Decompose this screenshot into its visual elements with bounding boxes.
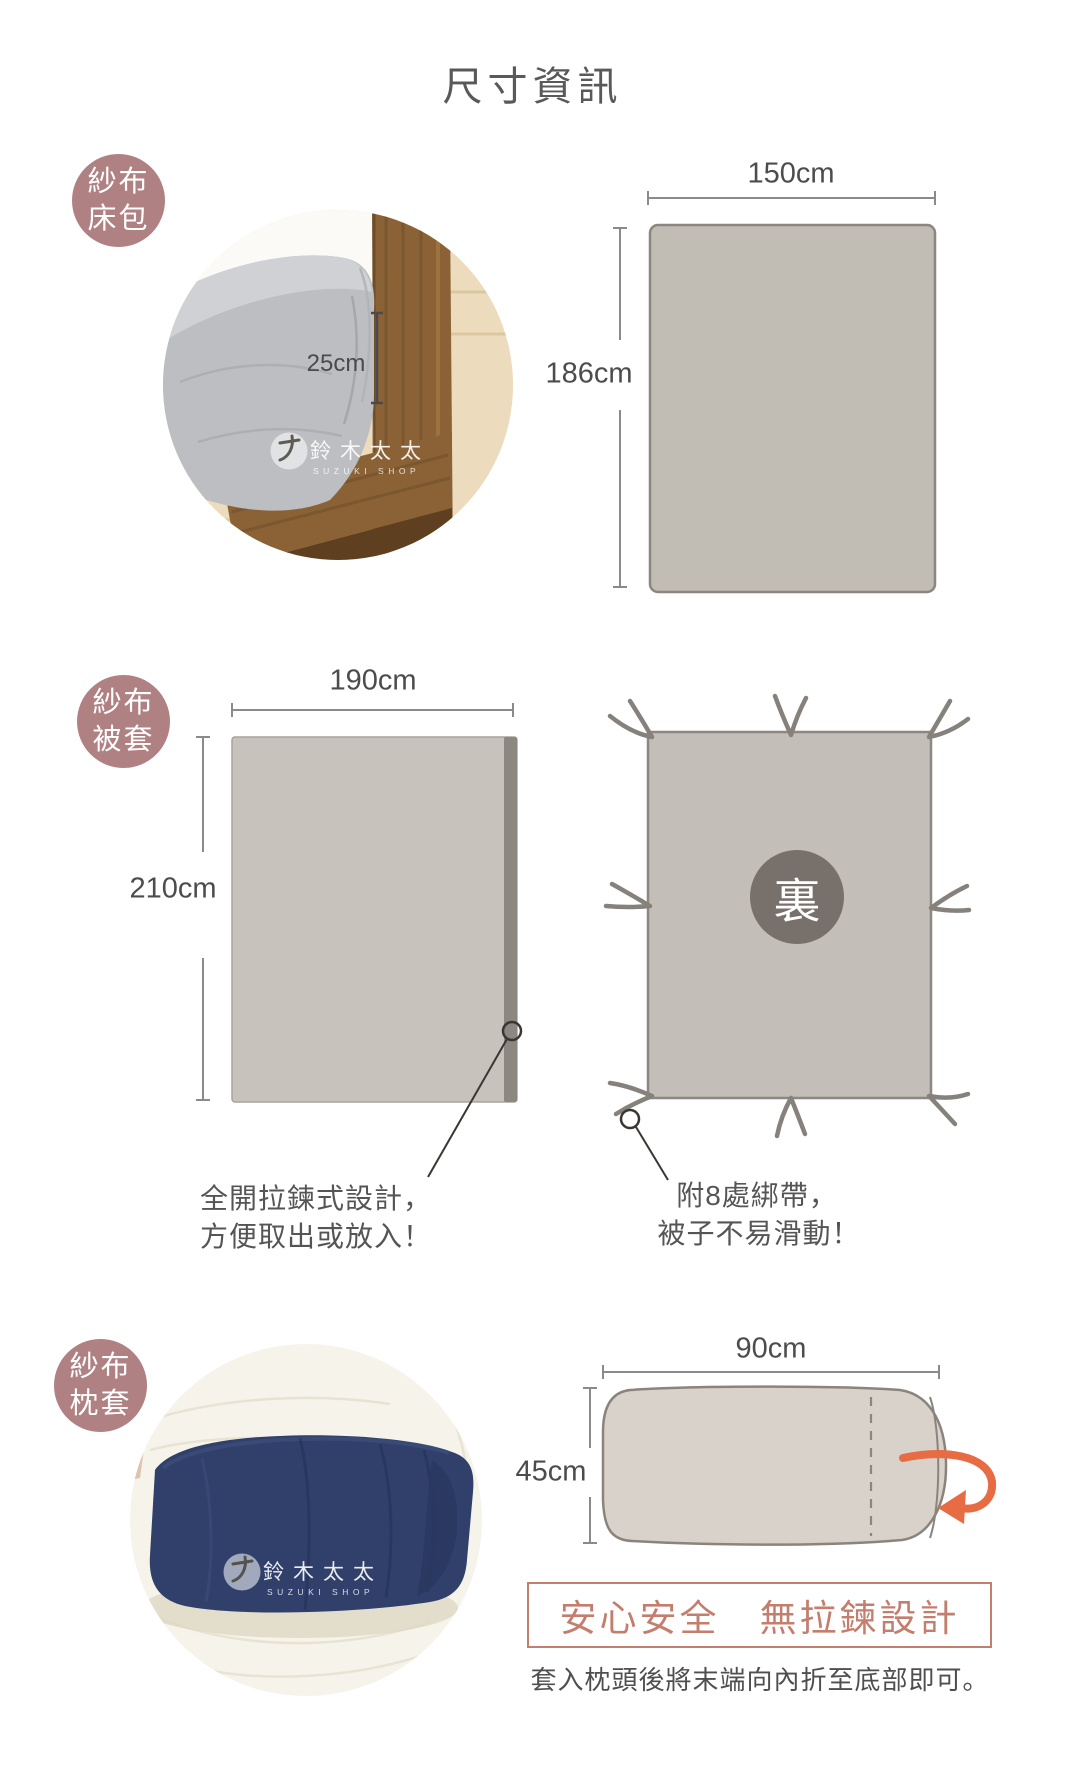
bed-corner-photo: 鈴木太太 SUZUKI SHOP xyxy=(163,210,513,590)
badge-label-line2: 被套 xyxy=(92,722,154,759)
badge-label-line1: 紗布 xyxy=(69,1349,131,1386)
duvet-width-label: 190cm xyxy=(329,665,416,698)
pillow-width-label: 90cm xyxy=(736,1333,807,1366)
duvet-front-diagram xyxy=(196,703,521,1177)
width-dimension-line xyxy=(232,703,513,717)
zipper-note-line2: 方便取出或放入！ xyxy=(200,1218,432,1256)
badge-label-line1: 紗布 xyxy=(87,164,149,201)
pillow-instruction: 套入枕頭後將末端向內折至底部即可。 xyxy=(500,1660,1020,1697)
tie-marker xyxy=(621,1110,639,1128)
watermark-sub: SUZUKI SHOP xyxy=(313,466,420,476)
badge-label-line2: 床包 xyxy=(87,201,149,238)
width-dimension-line xyxy=(603,1365,939,1379)
zipper-note-line1: 全開拉鍊式設計， xyxy=(200,1180,432,1218)
watermark-logo-icon xyxy=(224,1554,261,1591)
zipper-strip xyxy=(504,737,517,1102)
duvet-back-diagram xyxy=(606,696,969,1180)
watermark-brand: 鈴木太太 xyxy=(263,1561,383,1584)
badge-label-line2: 枕套 xyxy=(69,1386,131,1423)
fitted-sheet-diagram xyxy=(613,191,935,592)
back-side-label: 裏 xyxy=(774,863,821,932)
watermark-logo-icon xyxy=(271,433,308,470)
sheet-height-label: 186cm xyxy=(545,358,632,391)
ties-note-line1: 附8處綁帶， xyxy=(676,1177,838,1215)
badge-gauze-fitted-sheet: 紗布 床包 xyxy=(72,154,165,247)
size-info-infographic: 鈴木太太 SUZUKI SHOP xyxy=(0,0,1065,1771)
height-dimension-line xyxy=(196,737,210,1100)
sheet-depth-label: 25cm xyxy=(307,350,366,378)
duvet-height-label: 210cm xyxy=(129,873,216,906)
ties-note-line2: 被子不易滑動！ xyxy=(657,1215,860,1253)
watermark-brand: 鈴木太太 xyxy=(310,440,430,463)
height-dimension-line xyxy=(613,228,627,587)
navy-pillow xyxy=(150,1435,474,1612)
pillow-photo: 鈴木太太 SUZUKI SHOP xyxy=(130,1344,482,1696)
badge-gauze-pillowcase: 紗布 枕套 xyxy=(54,1339,147,1432)
width-dimension-line xyxy=(648,191,935,205)
safety-banner: 安心安全 無拉鍊設計 xyxy=(527,1582,992,1648)
pillow-height-label: 45cm xyxy=(516,1456,587,1489)
badge-gauze-duvet-cover: 紗布 被套 xyxy=(77,675,170,768)
badge-label-line1: 紗布 xyxy=(92,685,154,722)
pillowcase-diagram xyxy=(583,1365,992,1545)
ties-note-leader-line xyxy=(636,1127,668,1180)
watermark-sub: SUZUKI SHOP xyxy=(267,1587,374,1597)
page-title: 尺寸資訊 xyxy=(0,54,1065,112)
sheet-width-label: 150cm xyxy=(747,158,834,191)
